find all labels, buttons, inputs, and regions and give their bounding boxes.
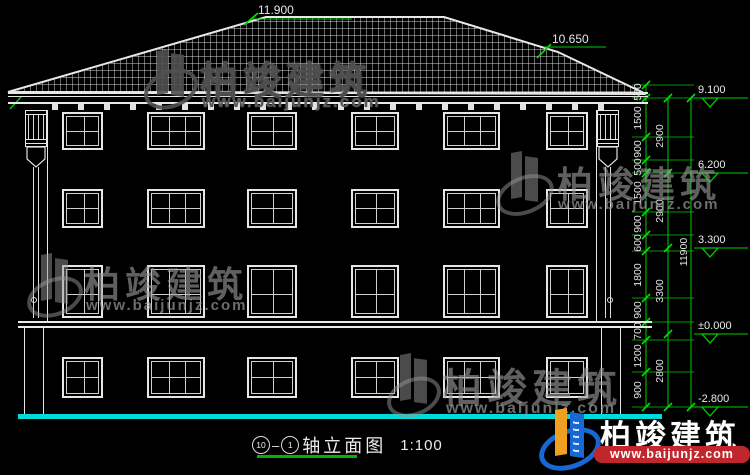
window-frame <box>447 361 496 394</box>
window-mullion <box>376 117 377 145</box>
window <box>546 189 588 228</box>
window <box>247 112 297 150</box>
dentil <box>78 104 84 110</box>
window-frame <box>355 269 395 314</box>
window-mullion <box>480 117 481 145</box>
dentil <box>286 104 292 110</box>
window-mullion <box>464 117 465 145</box>
basement-edge-right-outer <box>620 327 621 415</box>
window-mullion <box>185 194 186 223</box>
dentil <box>416 104 422 110</box>
window-transom <box>448 208 495 209</box>
dentil <box>546 104 552 110</box>
window-mullion <box>169 362 170 393</box>
window-frame <box>550 269 584 314</box>
dimension-label: 11900 <box>678 230 690 274</box>
column-ring <box>598 139 618 140</box>
window <box>443 112 500 150</box>
window-transom <box>67 131 98 132</box>
eave-fascia-mid <box>8 96 648 97</box>
window-mullion <box>464 194 465 223</box>
dentil <box>338 104 344 110</box>
window-mullion <box>273 270 274 313</box>
dentil <box>572 104 578 110</box>
window <box>147 112 205 150</box>
column-ring <box>26 114 46 115</box>
column-ring <box>26 143 46 144</box>
dentil <box>494 104 500 110</box>
wing-ridge-level-label: 10.650 <box>552 32 589 46</box>
window <box>62 357 103 398</box>
window <box>247 357 297 398</box>
level-marker-triangle <box>702 173 718 182</box>
window <box>351 357 399 398</box>
rain-hopper-right <box>599 147 617 167</box>
window <box>62 265 103 318</box>
belt-course-top <box>18 321 652 323</box>
dentil <box>364 104 370 110</box>
dentil <box>208 104 214 110</box>
level-marker-triangle <box>702 407 718 416</box>
window-mullion <box>169 270 170 313</box>
window-mullion <box>273 117 274 145</box>
window-transom <box>67 377 98 378</box>
window-transom <box>252 377 292 378</box>
window <box>147 357 205 398</box>
window-transom <box>252 131 292 132</box>
column-ring <box>598 114 618 115</box>
window-frame <box>151 116 201 146</box>
belt-course-bottom <box>18 326 652 328</box>
axis-dash: – <box>272 438 279 453</box>
axis-bubble-end: 1 <box>281 436 299 454</box>
window <box>443 357 500 398</box>
window-frame <box>550 193 584 224</box>
window-frame <box>151 269 201 314</box>
window-frame <box>251 269 293 314</box>
level-marker-triangle <box>702 248 718 257</box>
window-mullion <box>376 270 377 313</box>
window-transom <box>356 131 394 132</box>
window-transom <box>152 131 200 132</box>
window <box>546 357 588 398</box>
window-transom <box>152 208 200 209</box>
dentil <box>468 104 474 110</box>
window-transom <box>252 208 292 209</box>
dentil <box>260 104 266 110</box>
dentil <box>52 104 58 110</box>
window-frame <box>447 116 496 146</box>
window-mullion <box>464 362 465 393</box>
window-mullion <box>273 362 274 393</box>
window-mullion <box>568 117 569 145</box>
window-frame <box>151 361 201 394</box>
downspout-right <box>605 167 611 318</box>
window <box>351 189 399 228</box>
window-mullion <box>568 270 569 313</box>
window-transom <box>551 131 583 132</box>
window-frame <box>66 361 99 394</box>
title-scale: 1:100 <box>400 437 443 454</box>
window-mullion <box>185 117 186 145</box>
window-transom <box>448 377 495 378</box>
dentil <box>130 104 136 110</box>
window-transom <box>551 208 583 209</box>
axis-bubble-start: 10 <box>252 436 270 454</box>
window <box>351 265 399 318</box>
title-underline <box>257 455 357 458</box>
window-transom <box>448 294 495 295</box>
dentil <box>312 104 318 110</box>
window-frame <box>66 193 99 224</box>
dentil <box>234 104 240 110</box>
basement-edge-left-inner <box>43 327 44 415</box>
window-frame <box>251 361 293 394</box>
level-marker-triangle <box>702 98 718 107</box>
window-transom <box>551 294 583 295</box>
window-transom <box>252 294 292 295</box>
wall-corner-left <box>47 110 48 322</box>
dentil <box>520 104 526 110</box>
window <box>546 265 588 318</box>
window-frame <box>355 193 395 224</box>
dentil <box>104 104 110 110</box>
basement-edge-right-inner <box>601 327 602 415</box>
window-mullion <box>169 194 170 223</box>
window-mullion <box>464 270 465 313</box>
window-mullion <box>376 194 377 223</box>
window <box>443 265 500 318</box>
window-frame <box>550 361 584 394</box>
window-frame <box>355 361 395 394</box>
column-capital-left <box>25 110 47 147</box>
window <box>247 265 297 318</box>
dimension-label: 900 <box>632 368 644 412</box>
window-transom <box>152 294 200 295</box>
basement-edge-left-outer <box>24 327 25 415</box>
window-mullion <box>480 194 481 223</box>
window-frame <box>447 269 496 314</box>
window-transom <box>152 377 200 378</box>
ground-line <box>18 414 662 419</box>
window-mullion <box>376 362 377 393</box>
hip-roof <box>8 17 646 94</box>
column-fluting <box>600 115 616 139</box>
level-label: 6.200 <box>698 159 750 171</box>
ridge-level-label: 11.900 <box>258 3 294 17</box>
window-mullion <box>568 194 569 223</box>
column-ring <box>598 143 618 144</box>
window <box>147 265 205 318</box>
window <box>351 112 399 150</box>
level-label: -2.800 <box>698 393 750 405</box>
window <box>62 112 103 150</box>
column-fluting <box>28 115 44 139</box>
dentil <box>182 104 188 110</box>
rain-hopper-left <box>27 147 45 167</box>
level-marker-triangle <box>702 334 718 343</box>
window <box>546 112 588 150</box>
dimension-label: 3300 <box>654 269 666 313</box>
dimension-label: 2900 <box>654 114 666 158</box>
window-transom <box>448 131 495 132</box>
window-frame <box>251 193 293 224</box>
window-mullion <box>480 362 481 393</box>
dimension-label: 2800 <box>654 349 666 393</box>
window-frame <box>355 116 395 146</box>
level-label: 3.300 <box>698 234 750 246</box>
dentil <box>156 104 162 110</box>
window-frame <box>251 116 293 146</box>
window-mullion <box>84 194 85 223</box>
window-mullion <box>568 362 569 393</box>
window-transom <box>356 294 394 295</box>
window-mullion <box>169 117 170 145</box>
dimension-label: 2900 <box>654 189 666 233</box>
window-mullion <box>185 270 186 313</box>
window-transom <box>356 208 394 209</box>
window <box>62 189 103 228</box>
window-frame <box>447 193 496 224</box>
window-mullion <box>480 270 481 313</box>
window-mullion <box>84 117 85 145</box>
window-mullion <box>84 270 85 313</box>
window-transom <box>67 208 98 209</box>
window <box>147 189 205 228</box>
window-transom <box>551 377 583 378</box>
elevation-drawing-canvas: 11.900 10.650 50015009005001500900600180… <box>0 0 750 475</box>
window <box>247 189 297 228</box>
window-frame <box>66 116 99 146</box>
column-ring <box>26 139 46 140</box>
window-frame <box>151 193 201 224</box>
window-transom <box>356 377 394 378</box>
dentil <box>598 104 604 110</box>
eave-fascia-top <box>8 92 648 94</box>
level-label: 9.100 <box>698 84 750 96</box>
window-frame <box>66 269 99 314</box>
level-label: ±0.000 <box>698 320 750 332</box>
window-mullion <box>185 362 186 393</box>
dentil <box>390 104 396 110</box>
window-mullion <box>84 362 85 393</box>
window-frame <box>550 116 584 146</box>
window-mullion <box>273 194 274 223</box>
downspout-left <box>33 167 39 318</box>
dentil <box>442 104 448 110</box>
column-capital-right <box>597 110 619 147</box>
window-transom <box>67 294 98 295</box>
window <box>443 189 500 228</box>
